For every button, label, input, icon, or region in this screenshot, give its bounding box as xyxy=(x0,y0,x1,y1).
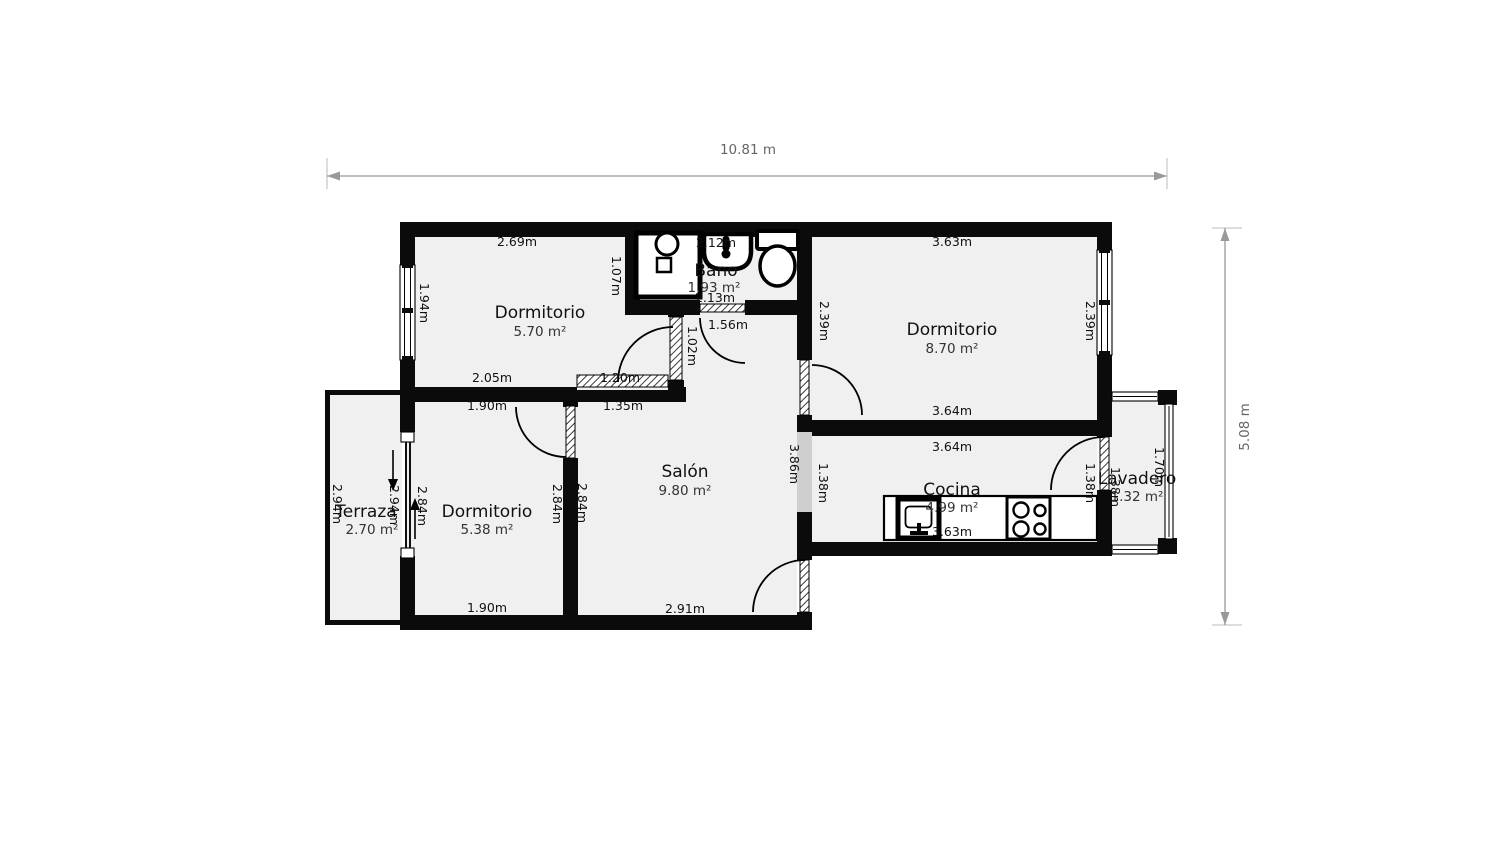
kitchen-fixtures xyxy=(884,496,1097,540)
dim-dtl-top: 2.69m xyxy=(497,234,537,249)
wall-cocina-bottom xyxy=(797,542,1112,556)
dim-salon-top: 1.35m xyxy=(603,398,643,413)
door-leaf-bedroom-tr xyxy=(800,360,809,415)
window-bedroom-tl-cap-mid xyxy=(402,308,413,313)
dim-salon-right: 3.86m xyxy=(787,444,802,484)
floorplan-canvas: 10.81 m 5.08 m Dormitorio 5.70 m² Bano 1… xyxy=(0,0,1500,844)
dim-bano-bottom: 2.13m xyxy=(695,290,735,305)
shower-drain-icon xyxy=(657,258,671,272)
dim-bano-door: 1.56m xyxy=(708,317,748,332)
dim-top-arrow-right xyxy=(1154,172,1167,181)
wall-hall-right-b xyxy=(797,415,812,432)
sliding-door-cap-top xyxy=(401,432,414,442)
wall-bath-bottom-a xyxy=(625,300,700,315)
wall-left-lower-a xyxy=(400,402,415,432)
dim-dtl-left: 1.94m xyxy=(417,283,432,323)
area-label-dormitorio-tr: 8.70 m² xyxy=(926,341,979,357)
sliding-door-cap-bottom xyxy=(401,548,414,558)
wall-lavadero-corner-tr xyxy=(1158,390,1177,405)
dim-terraza-right: 2.94m xyxy=(387,485,402,525)
dim-top-arrow-left xyxy=(327,172,340,181)
dim-lavadero-height: 1.70m xyxy=(1152,447,1167,487)
door-leaf-bath xyxy=(700,304,745,312)
dim-cocina-top: 3.64m xyxy=(932,439,972,454)
door-leaf-bedroom-bl xyxy=(566,406,575,458)
dim-right-arrow-bottom xyxy=(1221,612,1230,625)
window-bedroom-tl-cap-bot xyxy=(402,356,413,361)
dim-salon-left: 2.84m xyxy=(575,483,590,523)
burner-1-icon xyxy=(1014,503,1029,518)
burner-4-icon xyxy=(1035,524,1046,535)
window-bedroom-tr-cap-mid xyxy=(1099,300,1110,305)
area-label-dormitorio-tl: 5.70 m² xyxy=(514,324,567,340)
room-label-salon: Salón xyxy=(661,462,708,482)
kitchen-faucet-base-icon xyxy=(910,531,928,535)
dim-cocina-bottom: 3.63m xyxy=(932,524,972,539)
bath-faucet-base-icon xyxy=(722,250,731,259)
dim-lavadero-width: 1.38m xyxy=(1108,467,1123,507)
dim-bano-top: 2.12m xyxy=(696,235,736,250)
wall-left-upper-a xyxy=(400,222,415,265)
wall-terraza-bottom xyxy=(325,620,408,625)
dim-cocina-left: 1.38m xyxy=(816,463,831,503)
wall-bedroom-tl-right-b xyxy=(668,380,684,402)
dim-dtr-bottom: 3.64m xyxy=(932,403,972,418)
floor-plan: 10.81 m 5.08 m Dormitorio 5.70 m² Bano 1… xyxy=(0,0,1500,844)
dim-dbl-top: 1.90m xyxy=(467,398,507,413)
overall-height-label: 5.08 m xyxy=(1237,403,1253,451)
wall-right-upper-a xyxy=(1097,222,1112,250)
wall-left-lower-b xyxy=(400,556,415,630)
dim-dtr-left: 2.39m xyxy=(817,301,832,341)
dim-salon-bottom: 2.91m xyxy=(665,601,705,616)
wall-terraza-left xyxy=(325,390,330,625)
room-label-dormitorio-bl: Dormitorio xyxy=(442,502,533,522)
room-label-dormitorio-tl: Dormitorio xyxy=(495,303,586,323)
burner-3-icon xyxy=(1014,522,1029,537)
dim-dtl-right: 1.07m xyxy=(609,256,624,296)
wall-terraza-top xyxy=(325,390,408,395)
dim-right-arrow-top xyxy=(1221,228,1230,241)
toilet-bowl xyxy=(760,246,795,286)
area-label-cocina: 4.99 m² xyxy=(926,500,979,516)
room-label-cocina: Cocina xyxy=(923,480,981,500)
room-label-bano: Bano xyxy=(694,261,737,281)
wall-hall-right-a xyxy=(797,300,812,360)
shower-head-icon xyxy=(656,233,678,255)
dim-dtr-top: 3.63m xyxy=(932,234,972,249)
dim-dtl-door: 1.02m xyxy=(685,326,700,366)
wall-bedroom-tr-bottom xyxy=(812,420,1097,436)
area-label-dormitorio-bl: 5.38 m² xyxy=(461,522,514,538)
window-bedroom-tr-cap-bot xyxy=(1099,351,1110,356)
overall-width-label: 10.81 m xyxy=(720,142,776,158)
dim-terraza-left: 2.94m xyxy=(330,484,345,524)
wall-right-upper-b xyxy=(1097,355,1112,437)
dim-dbl-right: 2.84m xyxy=(550,484,565,524)
dim-dtl-bottom-left: 2.05m xyxy=(472,370,512,385)
dim-dbl-left: 2.84m xyxy=(415,486,430,526)
dim-cocina-right: 1.38m xyxy=(1083,463,1098,503)
dim-dtr-right: 2.39m xyxy=(1083,301,1098,341)
area-label-salon: 9.80 m² xyxy=(659,483,712,499)
dim-dtl-bottom-right: 1.20m xyxy=(600,370,640,385)
dim-dbl-bottom: 1.90m xyxy=(467,600,507,615)
window-bedroom-tr-cap-top xyxy=(1099,248,1110,253)
wall-main-bottom xyxy=(400,615,812,630)
room-label-dormitorio-tr: Dormitorio xyxy=(907,320,998,340)
wall-lavadero-corner-br xyxy=(1158,538,1177,554)
door-leaf-entrance xyxy=(800,560,809,612)
burner-2-icon xyxy=(1035,505,1046,516)
window-bedroom-tl-cap-top xyxy=(402,263,413,268)
